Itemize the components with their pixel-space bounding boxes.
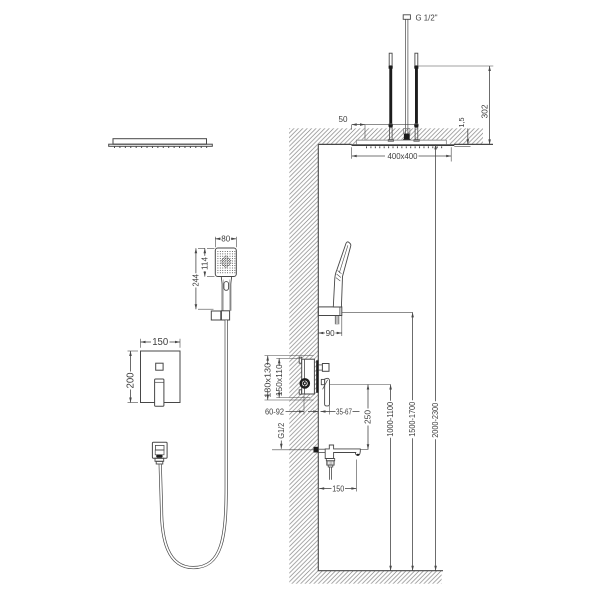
svg-text:50: 50 xyxy=(339,115,349,124)
svg-text:G 1/2": G 1/2" xyxy=(416,14,438,23)
svg-text:35-67: 35-67 xyxy=(336,407,352,416)
svg-text:150: 150 xyxy=(332,484,344,493)
svg-text:1500-1700: 1500-1700 xyxy=(408,401,417,437)
svg-text:150x110: 150x110 xyxy=(275,364,284,397)
svg-text:150: 150 xyxy=(152,337,168,348)
svg-text:250: 250 xyxy=(364,409,373,424)
svg-text:60-92: 60-92 xyxy=(265,407,285,416)
svg-text:90: 90 xyxy=(326,329,336,338)
svg-text:114: 114 xyxy=(200,256,209,270)
svg-text:302: 302 xyxy=(480,104,489,119)
svg-text:200: 200 xyxy=(126,372,137,388)
svg-text:1000-1100: 1000-1100 xyxy=(386,401,395,437)
svg-text:244: 244 xyxy=(191,274,200,287)
svg-text:2000-2300: 2000-2300 xyxy=(431,402,440,438)
svg-text:80: 80 xyxy=(221,235,231,244)
svg-text:180x130: 180x130 xyxy=(263,362,272,398)
svg-text:G1/2: G1/2 xyxy=(277,423,286,439)
svg-text:400x400: 400x400 xyxy=(388,152,418,161)
svg-text:1,5: 1,5 xyxy=(457,118,466,128)
